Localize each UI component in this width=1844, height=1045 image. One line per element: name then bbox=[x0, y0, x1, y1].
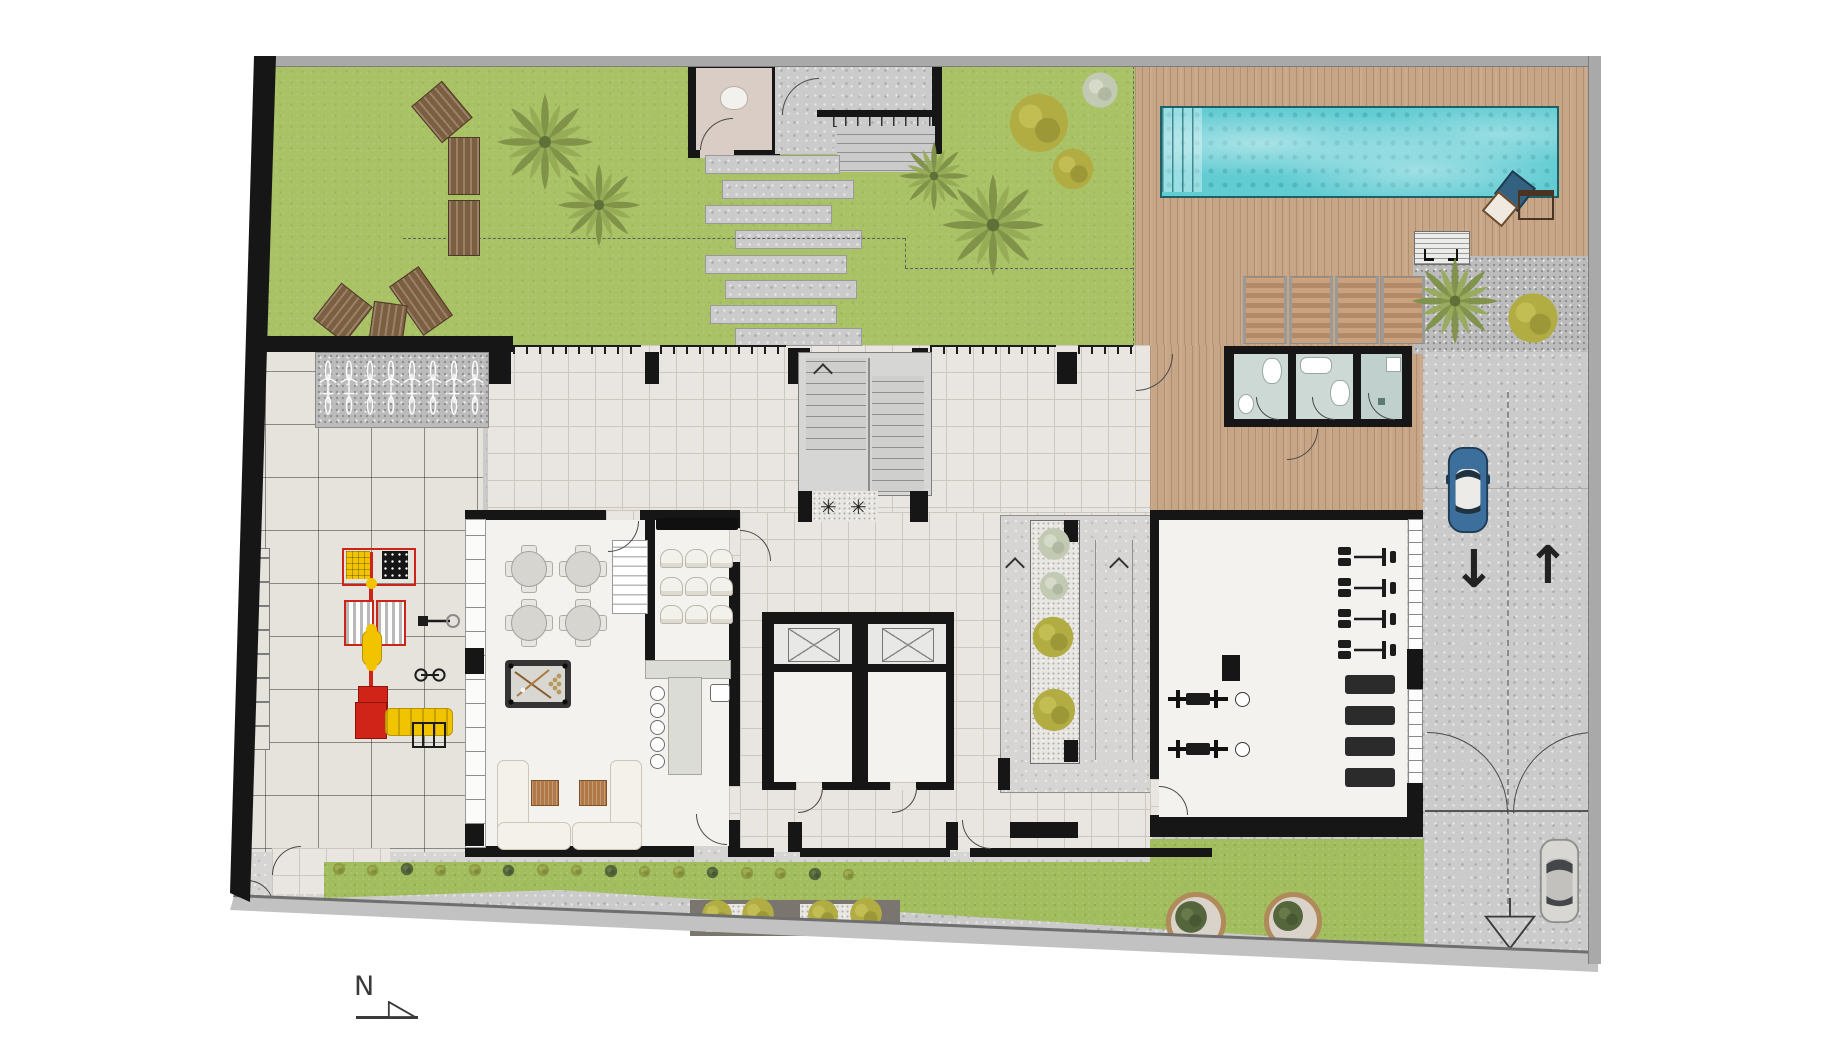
round-tree-icon bbox=[1505, 290, 1561, 346]
barbell-plate bbox=[1214, 740, 1218, 758]
lane-down-arrow: ↓ bbox=[1452, 540, 1496, 600]
service-room bbox=[774, 672, 852, 782]
south-wall bbox=[740, 848, 774, 857]
sofa-right-seat bbox=[572, 822, 642, 850]
hedge-bush bbox=[366, 864, 379, 877]
hedge-bush bbox=[400, 862, 414, 876]
entry-mat: ✳ ✳ bbox=[812, 491, 878, 522]
hedge-bush bbox=[672, 865, 686, 879]
north-triangle-icon bbox=[387, 1001, 417, 1018]
bar-stool-icon bbox=[650, 686, 665, 701]
elevator-shaft-icon bbox=[882, 628, 934, 662]
gym-stool-icon bbox=[1235, 692, 1250, 707]
interior-stair bbox=[612, 540, 648, 614]
shrub-icon bbox=[1038, 570, 1070, 602]
swimming-pool bbox=[1160, 106, 1559, 198]
clubhouse-east-door-gap2 bbox=[729, 786, 740, 820]
step-paver bbox=[705, 255, 847, 274]
north-boundary-wall bbox=[258, 56, 1598, 67]
bar-stool-icon bbox=[650, 720, 665, 735]
gym-column bbox=[1222, 655, 1240, 681]
hedge-bush bbox=[808, 867, 822, 881]
gym-stool-icon bbox=[1235, 742, 1250, 757]
column bbox=[910, 491, 928, 522]
snowflake-decor-icon: ✳ bbox=[850, 495, 867, 519]
column bbox=[1057, 352, 1077, 384]
window-wall-pier bbox=[465, 648, 484, 674]
gym-station-icon bbox=[1338, 639, 1398, 661]
sun-lounger bbox=[1289, 276, 1333, 344]
hedge-bush bbox=[774, 867, 787, 880]
south-wall bbox=[970, 848, 1212, 857]
planter-bush-icon bbox=[1173, 899, 1209, 935]
gym-station-icon bbox=[1338, 608, 1398, 630]
outdoor-ladder-icon bbox=[412, 722, 446, 748]
bicycle-rack-icons bbox=[317, 354, 487, 424]
shrub-icon bbox=[1036, 526, 1072, 562]
shrub-icon bbox=[1030, 614, 1076, 660]
garden-bench bbox=[448, 137, 480, 195]
cafe-table-set bbox=[505, 599, 551, 645]
palm-tree-icon bbox=[940, 172, 1046, 278]
east-boundary-wall bbox=[1588, 56, 1601, 964]
playground-joint bbox=[366, 624, 377, 635]
column bbox=[946, 822, 958, 850]
deck-edge-line bbox=[1133, 66, 1134, 346]
hedge-bush bbox=[842, 868, 855, 881]
exit-arrow-icon bbox=[1480, 898, 1540, 952]
elevator-shaft-icon bbox=[788, 628, 840, 662]
palm-tree-icon bbox=[556, 162, 642, 248]
step-paver bbox=[735, 230, 862, 249]
hedge-bush bbox=[502, 864, 515, 877]
hedge-bush bbox=[604, 864, 618, 878]
pale-shrub-icon bbox=[1080, 70, 1120, 110]
hedge-bush bbox=[638, 865, 651, 878]
bar-sink-icon bbox=[710, 684, 730, 702]
sun-lounger bbox=[1243, 276, 1287, 344]
column bbox=[798, 491, 812, 522]
playground-joint bbox=[366, 660, 377, 671]
gym-station-icon bbox=[1338, 577, 1398, 599]
outdoor-gym-icon bbox=[416, 608, 460, 634]
coffee-table-icon bbox=[531, 780, 559, 806]
sink-icon bbox=[1238, 394, 1254, 414]
pool-side-table-icon bbox=[1518, 190, 1554, 220]
barbell-plate bbox=[1176, 740, 1180, 758]
playground-panel-yellow bbox=[346, 551, 370, 579]
bar-counter-stem bbox=[668, 677, 702, 775]
hedge-bush bbox=[706, 866, 719, 879]
gym-window-east bbox=[1408, 519, 1423, 651]
shrub-icon bbox=[1030, 686, 1078, 734]
hedge-bush bbox=[570, 864, 583, 877]
stair-divider bbox=[868, 358, 870, 492]
window-wall-pier bbox=[465, 824, 484, 846]
step-paver bbox=[725, 280, 857, 299]
bar-stool-icon bbox=[650, 737, 665, 752]
gym-mat-icon bbox=[1345, 675, 1395, 694]
corner-sink-icon bbox=[1386, 357, 1401, 372]
lawn-fence bbox=[513, 345, 641, 354]
clubhouse-window-wall bbox=[465, 519, 486, 848]
lane-up-arrow: ↑ bbox=[1526, 536, 1570, 596]
north-label: N bbox=[354, 971, 374, 1002]
car-gray-icon bbox=[1538, 838, 1581, 924]
gym-mat-icon bbox=[1345, 706, 1395, 725]
gym-mat-icon bbox=[1345, 737, 1395, 756]
court-rail-wall bbox=[817, 110, 934, 117]
snowflake-decor-icon: ✳ bbox=[820, 495, 837, 519]
cafe-table-set bbox=[559, 599, 605, 645]
service-room bbox=[868, 672, 946, 782]
gym-bench-icon bbox=[1186, 693, 1210, 705]
barbell-plate bbox=[1176, 690, 1180, 708]
gym-door-gap bbox=[1150, 779, 1159, 815]
bar-stool-icon bbox=[650, 703, 665, 718]
site-plan-canvas: ✳ ✳ bbox=[0, 0, 1844, 1045]
round-table-icon bbox=[511, 605, 547, 641]
playground-panel-dark bbox=[382, 551, 408, 579]
round-table-icon bbox=[565, 605, 601, 641]
cinema-screen bbox=[656, 518, 738, 530]
clubhouse-north-door-gap bbox=[606, 510, 640, 520]
round-tree-icon bbox=[1050, 146, 1096, 192]
gym-mat-icon bbox=[1345, 768, 1395, 787]
elevator-cab bbox=[774, 624, 852, 664]
lawn-fence bbox=[1078, 345, 1133, 354]
hedge-bush bbox=[536, 863, 550, 877]
hedge-bush bbox=[434, 864, 447, 877]
hedge-bush bbox=[468, 863, 482, 877]
hedge-bush bbox=[332, 862, 346, 876]
counter-sink-icon bbox=[1300, 357, 1332, 374]
cafe-table-set bbox=[559, 545, 605, 591]
lawn-fence bbox=[930, 345, 1056, 354]
round-table-icon bbox=[511, 551, 547, 587]
gym-west-wall bbox=[1150, 519, 1159, 817]
bike-area-wall bbox=[253, 336, 513, 352]
bar-stool-icon bbox=[650, 754, 665, 769]
outdoor-bike-icon bbox=[414, 664, 446, 686]
clubhouse-south-door-gap bbox=[694, 846, 728, 857]
step-paver bbox=[705, 155, 840, 174]
gym-east-pier bbox=[1407, 649, 1423, 689]
ramp-south-wall bbox=[1010, 822, 1078, 838]
step-paver bbox=[735, 328, 862, 346]
sofa-left-seat bbox=[497, 822, 571, 850]
ramp-lane-line bbox=[1095, 540, 1096, 760]
setback-line bbox=[905, 238, 906, 268]
toilet-icon bbox=[1262, 358, 1282, 384]
gym-north-wall bbox=[1150, 510, 1423, 520]
column bbox=[645, 352, 659, 384]
column bbox=[788, 822, 802, 852]
billiards-table-icon bbox=[505, 660, 571, 708]
gym-bench-icon bbox=[1186, 743, 1210, 755]
planter-pier bbox=[1064, 740, 1078, 762]
gym-station-icon bbox=[1338, 546, 1398, 568]
driveway-centerline bbox=[1507, 392, 1509, 904]
barbell-plate bbox=[1214, 690, 1218, 708]
north-indicator: N bbox=[340, 965, 460, 1035]
cafe-table-set bbox=[505, 545, 551, 591]
playground-joint bbox=[366, 578, 377, 589]
gym-east-pier bbox=[1407, 783, 1423, 817]
step-paver bbox=[710, 305, 837, 324]
washbasin-icon bbox=[720, 86, 748, 110]
hedge-bush bbox=[740, 866, 754, 880]
ramp-lane-line bbox=[1132, 540, 1133, 760]
south-wall bbox=[800, 848, 950, 857]
step-paver bbox=[722, 180, 854, 199]
lawn-fence bbox=[660, 345, 786, 354]
coffee-table-icon bbox=[579, 780, 607, 806]
pool-steps bbox=[1162, 108, 1202, 192]
sun-lounger bbox=[1335, 276, 1379, 344]
playground-tower bbox=[355, 702, 387, 739]
car-blue-icon bbox=[1446, 446, 1490, 534]
round-table-icon bbox=[565, 551, 601, 587]
palm-tree-icon bbox=[1410, 256, 1500, 346]
planter-bush-icon bbox=[1271, 899, 1305, 933]
elevator-cab bbox=[868, 624, 946, 664]
column bbox=[998, 758, 1010, 790]
garden-bench bbox=[448, 200, 480, 256]
gym-window-east bbox=[1408, 689, 1423, 785]
step-paver bbox=[705, 205, 832, 224]
gym-south-wall bbox=[1150, 817, 1423, 837]
stair-flight bbox=[872, 376, 924, 492]
